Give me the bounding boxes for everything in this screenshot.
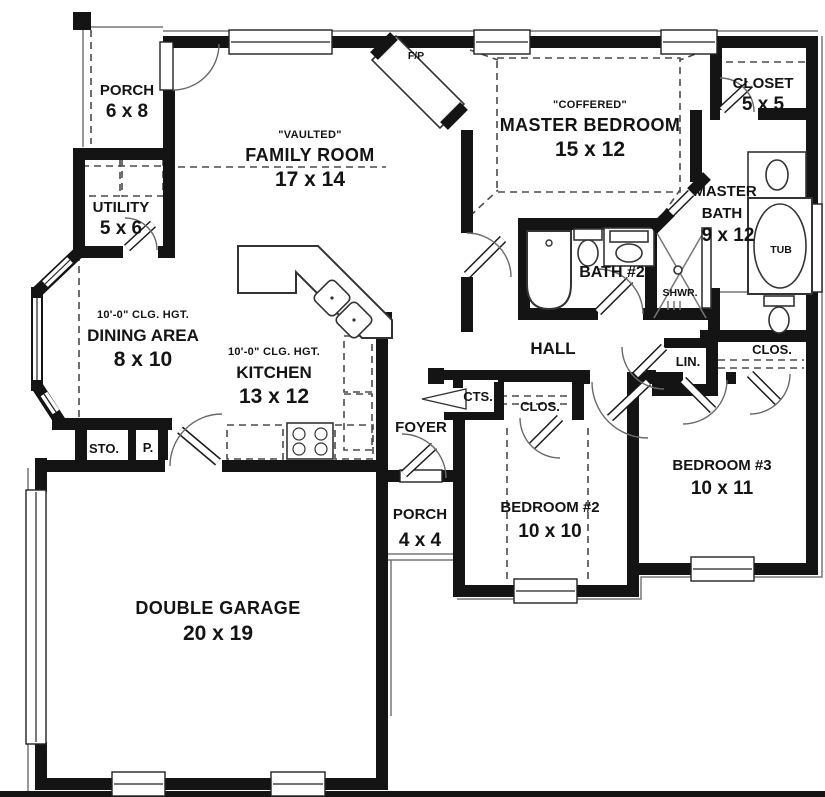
door [170, 414, 222, 466]
floor-plan-canvas: PORCH 6 x 8 UTILITY 5 x 6 "VAULTED" FAMI… [0, 0, 825, 797]
toilet [574, 229, 602, 266]
master-bath-label1: MASTER [693, 183, 757, 200]
toilet [764, 296, 794, 333]
door [592, 382, 648, 438]
garage-dims: 20 x 19 [183, 622, 253, 645]
closet-mid-label: CLOS. [520, 399, 560, 414]
window [112, 772, 165, 796]
dining-dims: 8 x 10 [114, 348, 172, 371]
master-label: MASTER BEDROOM [500, 115, 681, 135]
sink-vanity [604, 228, 654, 266]
dining-note: 10'-0" CLG. HGT. [97, 309, 189, 321]
closet-door [520, 418, 560, 458]
storage-label: STO. [89, 441, 119, 456]
shower-label: SHWR. [663, 287, 698, 299]
tub-label: TUB [770, 244, 792, 256]
closet-door [750, 374, 790, 414]
window [271, 772, 325, 796]
porch2-dims: 4 x 4 [399, 530, 442, 551]
kitchen-counter [238, 246, 392, 340]
door [467, 233, 511, 277]
kitchen-note: 10'-0" CLG. HGT. [228, 346, 320, 358]
family-note: "VAULTED" [278, 129, 341, 141]
kitchen-label: KITCHEN [236, 363, 312, 382]
bedroom2-label: BEDROOM #2 [500, 499, 599, 516]
window [474, 30, 530, 54]
porch2-label: PORCH [393, 506, 447, 523]
master-note: "COFFERED" [553, 99, 627, 111]
pantry-label: P. [143, 440, 154, 455]
door [160, 42, 219, 90]
window [26, 490, 46, 744]
fireplace-label: F/P [408, 50, 424, 62]
bedroom3-label: BEDROOM #3 [672, 457, 771, 474]
kitchen-dims: 13 x 12 [239, 385, 309, 408]
foundation-outline [28, 27, 822, 794]
window [691, 557, 754, 581]
porch1-dims: 6 x 8 [106, 101, 148, 122]
floor-plan-page: PORCH 6 x 8 UTILITY 5 x 6 "VAULTED" FAMI… [0, 0, 825, 797]
closet-label: CLOSET [733, 75, 794, 92]
family-dims: 17 x 14 [275, 168, 345, 191]
dining-label: DINING AREA [87, 326, 199, 345]
sink-vanity [748, 152, 806, 198]
coat-closet-door [422, 389, 466, 409]
closet-right-label: CLOS. [752, 342, 792, 357]
garage-label: DOUBLE GARAGE [135, 598, 300, 618]
master-dims: 15 x 12 [555, 138, 625, 161]
window [229, 30, 332, 54]
front-door [400, 434, 446, 482]
foyer-label: FOYER [395, 419, 447, 436]
window [661, 30, 717, 54]
closet-dims: 5 x 5 [742, 94, 785, 115]
linen-label: LIN. [676, 354, 701, 369]
master-bath-label2: BATH [702, 205, 743, 222]
bedroom2-dims: 10 x 10 [518, 521, 581, 542]
bedroom3-dims: 10 x 11 [691, 478, 754, 499]
porch1-label: PORCH [100, 82, 154, 99]
family-label: FAMILY ROOM [245, 145, 374, 165]
bath2-label: BATH #2 [579, 264, 645, 281]
utility-label: UTILITY [93, 199, 150, 216]
master-bath-dims: 9 x 12 [702, 225, 755, 246]
range [287, 423, 333, 459]
bay-window [37, 253, 78, 423]
hall-label: HALL [530, 339, 575, 358]
window [514, 579, 577, 603]
coat-closet-label: CTS. [463, 389, 493, 404]
utility-dims: 5 x 6 [100, 218, 142, 239]
bathtub [527, 231, 571, 309]
